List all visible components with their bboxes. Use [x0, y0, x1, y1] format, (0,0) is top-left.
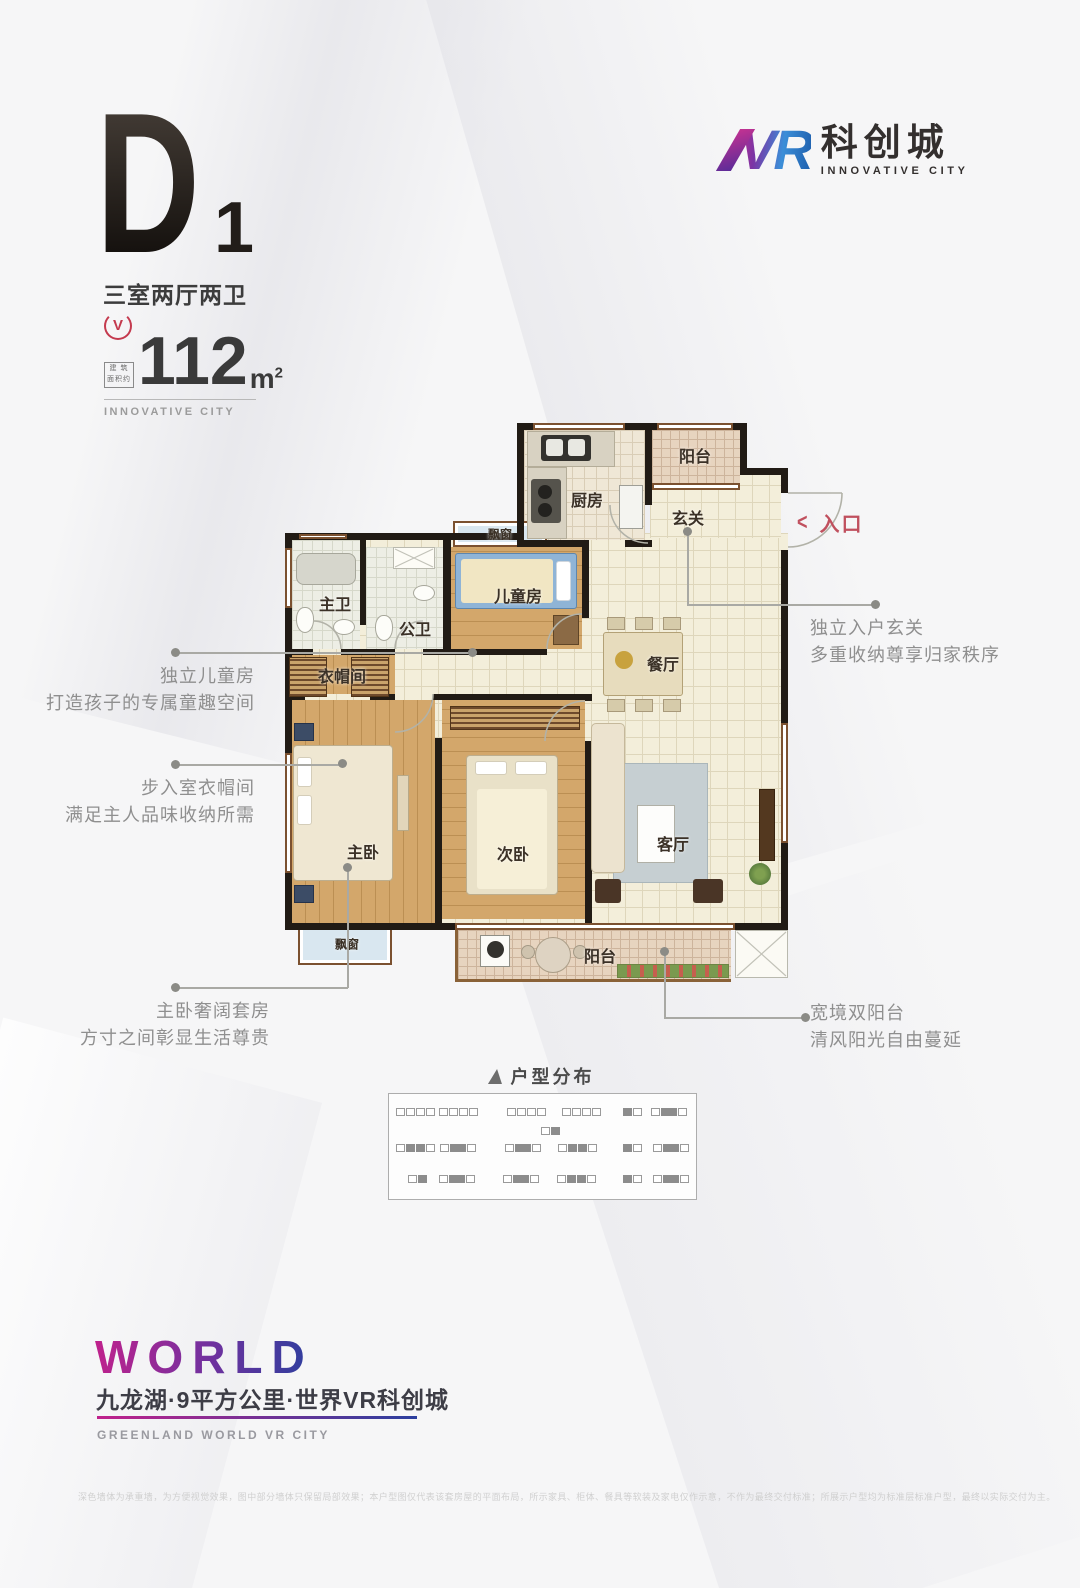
toilet [375, 615, 393, 641]
room-label-foyer: 玄关 [672, 505, 704, 529]
layout-type: 三室两厅两卫 [103, 276, 247, 310]
room-label-balcony-top: 阳台 [679, 443, 711, 467]
dining-chair [635, 699, 653, 712]
dining-centerpiece [615, 651, 633, 669]
distribution-building [653, 1175, 689, 1183]
stool [595, 879, 621, 903]
distribution-building [507, 1108, 546, 1116]
unit-cell [459, 1108, 468, 1116]
annotation-kids-room: 独立儿童房 打造孩子的专属童趣空间 [46, 663, 255, 717]
connector-line [687, 532, 689, 605]
connector-dot [871, 600, 880, 609]
annotation-subtitle: 打造孩子的专属童趣空间 [46, 690, 255, 717]
unit-cell [503, 1175, 512, 1183]
unit-cell [449, 1108, 458, 1116]
brand-name-en: INNOVATIVE CITY [821, 165, 969, 177]
toilet [296, 607, 314, 633]
connector-line [347, 868, 349, 988]
room-label-kitchen: 厨房 [571, 487, 603, 511]
distribution-building [541, 1127, 560, 1135]
unit-cell [588, 1144, 597, 1152]
connector-line [664, 952, 666, 1018]
distribution-building [396, 1144, 435, 1152]
unit-cell-highlighted [513, 1175, 529, 1183]
unit-cell [467, 1144, 476, 1152]
stove-burner [538, 503, 552, 517]
unit-cell [396, 1144, 405, 1152]
unit-cell [633, 1144, 642, 1152]
unit-cell-highlighted [406, 1144, 415, 1152]
unit-cell [469, 1108, 478, 1116]
unit-cell [426, 1108, 435, 1116]
nightstand [294, 885, 314, 903]
plant [749, 863, 771, 885]
kitchen-sink-basin [568, 439, 585, 456]
room-label-master: 主卧 [347, 839, 379, 863]
unit-cell [527, 1108, 536, 1116]
sink [413, 585, 435, 601]
unit-cell [537, 1108, 546, 1116]
annotation-cloakroom: 步入室衣帽间 满足主人品味收纳所需 [65, 775, 255, 829]
unit-cell [517, 1108, 526, 1116]
unit-cell-highlighted [450, 1144, 466, 1152]
dining-chair [663, 617, 681, 630]
disclaimer-text: 深色墙体为承重墙，为方便视觉效果，图中部分墙体只保留局部效果；本户型图仅代表该套… [78, 1490, 1056, 1503]
connector-line [664, 1017, 805, 1019]
unit-cell-highlighted [416, 1144, 425, 1152]
room-label-second: 次卧 [497, 841, 529, 865]
pillow [515, 761, 547, 775]
unit-cell [633, 1175, 642, 1183]
stove-burner [538, 485, 552, 499]
wall [645, 430, 652, 490]
area-note-line2: 面积约 [105, 374, 133, 385]
room-label-bay-top: 飘窗 [488, 526, 512, 543]
pillow [297, 757, 312, 787]
connector-dot [343, 863, 352, 872]
brand-logo: VR 科创城 INNOVATIVE CITY [728, 122, 969, 178]
unit-cell [582, 1108, 591, 1116]
distribution-building [408, 1175, 427, 1183]
unit-cell [558, 1144, 567, 1152]
annotation-title: 主卧奢阔套房 [80, 998, 270, 1025]
unit-cell [651, 1108, 660, 1116]
annotation-title: 宽境双阳台 [810, 1000, 962, 1027]
dining-chair [607, 617, 625, 630]
unit-cell [678, 1108, 687, 1116]
dining-chair [607, 699, 625, 712]
connector-dot [171, 760, 180, 769]
unit-cell [416, 1108, 425, 1116]
annotation-title: 独立入户玄关 [810, 615, 1000, 642]
connector-line [175, 652, 472, 654]
shaft-box [393, 547, 435, 569]
room-label-kids: 儿童房 [494, 583, 542, 607]
unit-cell [633, 1108, 642, 1116]
red-check-icon: V [104, 312, 132, 340]
unit-cell [541, 1127, 550, 1135]
annotation-subtitle: 清风阳光自由蔓延 [810, 1027, 962, 1054]
world-logo: WORLD [95, 1330, 314, 1384]
wall [582, 540, 589, 618]
unit-cell [562, 1108, 571, 1116]
distribution-building [396, 1108, 435, 1116]
bed-blanket [477, 789, 547, 889]
unit-cell-highlighted [568, 1144, 577, 1152]
unit-cell [653, 1175, 662, 1183]
unit-cell [557, 1175, 566, 1183]
window [652, 483, 740, 490]
poster-page: D 1 三室两厅两卫 V 建 筑 面积约 112 m2 INNOVATIVE C… [0, 0, 1080, 1588]
unit-cell-highlighted [567, 1175, 576, 1183]
distribution-building [439, 1175, 475, 1183]
connector-dot [171, 983, 180, 992]
pillow [297, 795, 312, 825]
window [285, 548, 292, 608]
wall [435, 738, 442, 930]
room-label-living: 客厅 [657, 831, 689, 855]
wall [443, 540, 451, 649]
annotation-title: 独立儿童房 [46, 663, 255, 690]
bed-bench [397, 775, 409, 831]
pillow [475, 761, 507, 775]
distribution-building [623, 1108, 642, 1116]
unit-cell [396, 1108, 405, 1116]
annotation-master-suite: 主卧奢阔套房 方寸之间彰显生活尊贵 [80, 998, 270, 1052]
distribution-box [388, 1093, 697, 1200]
north-arrow-icon [487, 1069, 503, 1084]
window [533, 423, 625, 430]
connector-dot [801, 1013, 810, 1022]
unit-cell-highlighted [577, 1175, 586, 1183]
unit-cell-highlighted [418, 1175, 427, 1183]
entrance-label: 入口 [820, 508, 864, 537]
unit-cell [680, 1144, 689, 1152]
unit-cell [532, 1144, 541, 1152]
annotation-subtitle: 方寸之间彰显生活尊贵 [80, 1025, 270, 1052]
wall [360, 540, 366, 625]
distribution-building [557, 1175, 596, 1183]
connector-dot [338, 759, 347, 768]
window [285, 753, 292, 873]
stool [693, 879, 723, 903]
tv-console [759, 789, 775, 861]
annotation-balconies: 宽境双阳台 清风阳光自由蔓延 [810, 1000, 962, 1054]
room-label-cloakroom: 衣帽间 [318, 663, 366, 687]
distribution-building [653, 1144, 689, 1152]
room-label-balcony-bottom: 阳台 [584, 943, 616, 967]
unit-cell-highlighted [623, 1108, 632, 1116]
balcony-table [535, 937, 571, 973]
distribution-building [623, 1175, 642, 1183]
wardrobe [450, 706, 580, 730]
unit-cell [587, 1175, 596, 1183]
ac-platform [735, 930, 788, 978]
entrance-arrow-icon: < [797, 509, 810, 536]
entrance-marker: < 入口 [797, 508, 864, 537]
header-subtitle-en: INNOVATIVE CITY [104, 406, 235, 418]
bathtub [296, 553, 356, 585]
connector-line [175, 987, 348, 989]
dining-chair [635, 617, 653, 630]
distribution-building [505, 1144, 541, 1152]
footer-divider [97, 1416, 417, 1419]
kids-desk [553, 615, 579, 645]
unit-cell-highlighted [449, 1175, 465, 1183]
wall [585, 694, 592, 701]
annotation-subtitle: 满足主人品味收纳所需 [65, 802, 255, 829]
sofa [591, 723, 625, 873]
unit-cell [406, 1108, 415, 1116]
wall [433, 694, 592, 700]
area-note-box: 建 筑 面积约 [104, 362, 134, 388]
unit-cell [653, 1144, 662, 1152]
distribution-building [503, 1175, 539, 1183]
wall [625, 540, 652, 547]
flower-planter [617, 964, 729, 978]
room-label-guest-bath: 公卫 [399, 616, 431, 640]
distribution-building [651, 1108, 687, 1116]
unit-cell-highlighted [578, 1144, 587, 1152]
brand-name-cn: 科创城 [821, 124, 969, 161]
area-unit: m2 [250, 365, 283, 393]
annotation-foyer: 独立入户玄关 多重收纳尊享归家秩序 [810, 615, 1000, 669]
sink [333, 619, 355, 635]
unit-cell [572, 1108, 581, 1116]
floorplan: 厨房 阳台 玄关 飘窗 儿童房 主卫 公卫 衣帽间 餐厅 主卧 次卧 客厅 飘窗… [285, 423, 790, 988]
distribution-building [439, 1108, 478, 1116]
distribution-building [562, 1108, 601, 1116]
wall [517, 423, 524, 540]
room-label-dining: 餐厅 [647, 651, 679, 675]
connector-line [687, 604, 875, 606]
unit-cell [408, 1175, 417, 1183]
unit-cell-highlighted [663, 1144, 679, 1152]
unit-cell [507, 1108, 516, 1116]
kids-bed-pillow [556, 561, 571, 601]
kitchen-sink-basin [546, 439, 563, 456]
unit-letter: D [96, 84, 200, 284]
distribution-title-text: 户型分布 [511, 1063, 595, 1089]
footer-tagline: 九龙湖·9平方公里·世界VR科创城 [96, 1381, 449, 1415]
area-note-line1: 建 筑 [105, 363, 133, 374]
distribution-building [440, 1144, 476, 1152]
connector-dot [683, 527, 692, 536]
wall [545, 540, 589, 547]
distribution-building [558, 1144, 597, 1152]
distribution-title: 户型分布 [388, 1063, 695, 1089]
footer-subtitle-en: GREENLAND WORLD VR CITY [97, 1428, 330, 1442]
sliding-door [455, 923, 735, 930]
unit-cell [466, 1175, 475, 1183]
unit-cell [530, 1175, 539, 1183]
connector-dot [171, 648, 180, 657]
fridge [619, 485, 643, 529]
distribution-building [623, 1144, 642, 1152]
unit-cell-highlighted [515, 1144, 531, 1152]
balcony-chair [521, 945, 535, 959]
unit-cell-highlighted [623, 1175, 632, 1183]
room-label-master-bath: 主卫 [319, 591, 351, 615]
annotation-subtitle: 多重收纳尊享归家秩序 [810, 642, 1000, 669]
unit-cell-highlighted [623, 1144, 632, 1152]
unit-cell [426, 1144, 435, 1152]
window [657, 423, 733, 430]
unit-cell [440, 1144, 449, 1152]
area: 112 m2 [138, 330, 283, 393]
unit-cell [439, 1175, 448, 1183]
dining-chair [663, 699, 681, 712]
unit-cell-highlighted [551, 1127, 560, 1135]
connector-line [175, 764, 342, 766]
connector-dot [468, 648, 477, 657]
unit-cell-highlighted [663, 1175, 679, 1183]
annotation-title: 步入室衣帽间 [65, 775, 255, 802]
unit-cell [592, 1108, 601, 1116]
washing-machine-door [487, 941, 504, 958]
connector-dot [660, 947, 669, 956]
unit-cell-highlighted [661, 1108, 677, 1116]
wall [781, 468, 788, 493]
window [299, 534, 347, 539]
unit-cell [505, 1144, 514, 1152]
unit-cell [439, 1108, 448, 1116]
header-divider [104, 399, 256, 400]
window [781, 723, 788, 843]
unit-cell [680, 1175, 689, 1183]
unit-number: 1 [214, 192, 254, 264]
nightstand [294, 723, 314, 741]
area-value: 112 [138, 330, 248, 393]
wall [645, 490, 652, 505]
